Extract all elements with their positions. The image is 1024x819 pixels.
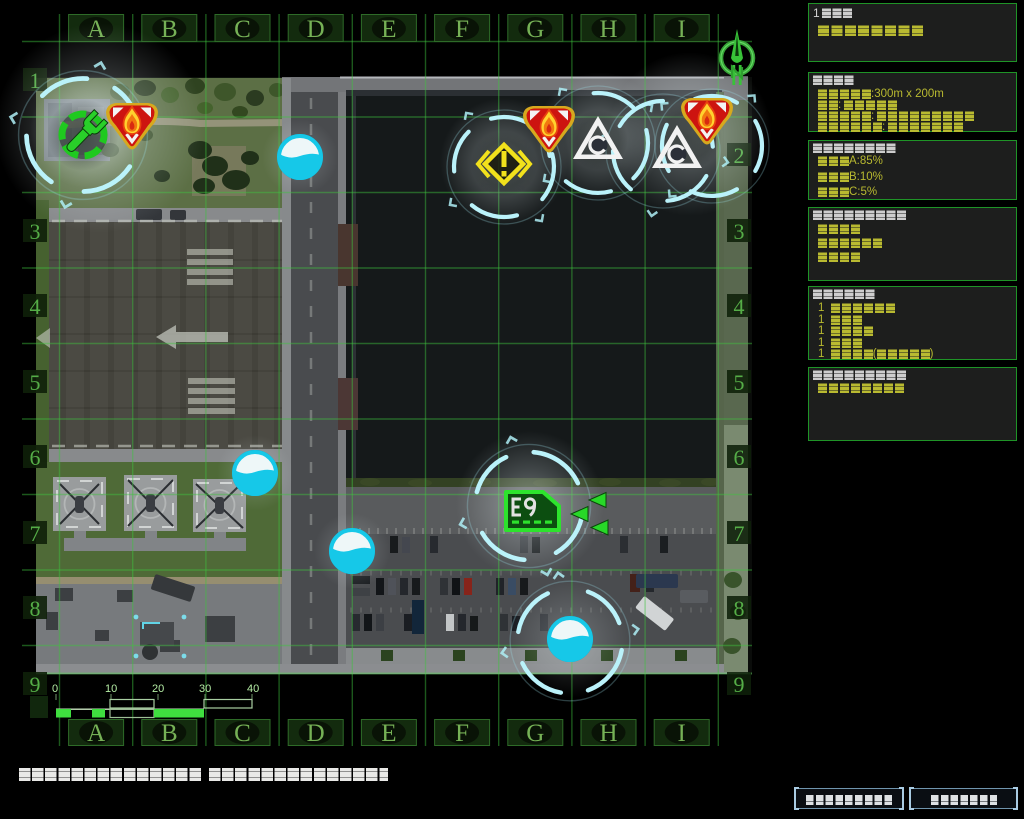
- svg-text:8: 8: [734, 596, 745, 621]
- svg-text:8: 8: [30, 596, 41, 621]
- svg-text:7: 7: [734, 521, 745, 546]
- svg-text:5: 5: [30, 370, 41, 395]
- svg-text:7: 7: [30, 521, 41, 546]
- svg-text:6: 6: [30, 445, 41, 470]
- svg-text:C: C: [234, 16, 251, 43]
- svg-text:H: H: [599, 16, 617, 43]
- svg-text:G: G: [526, 720, 544, 747]
- svg-text:20: 20: [152, 683, 164, 695]
- svg-text:E: E: [381, 16, 396, 43]
- svg-text:9: 9: [734, 672, 745, 697]
- svg-text:I: I: [678, 720, 686, 747]
- svg-text:H: H: [599, 720, 617, 747]
- svg-text:C: C: [234, 720, 251, 747]
- svg-text:0: 0: [52, 683, 58, 695]
- svg-text:3: 3: [30, 219, 41, 244]
- svg-text:B: B: [161, 720, 178, 747]
- svg-text:5: 5: [734, 370, 745, 395]
- svg-text:E: E: [381, 720, 396, 747]
- svg-text:F: F: [455, 720, 469, 747]
- svg-text:6: 6: [734, 445, 745, 470]
- svg-text:30: 30: [199, 683, 211, 695]
- svg-text:40: 40: [247, 683, 259, 695]
- svg-text:3: 3: [734, 219, 745, 244]
- svg-text:B: B: [161, 16, 178, 43]
- svg-text:I: I: [678, 16, 686, 43]
- svg-text:10: 10: [105, 683, 117, 695]
- svg-text:9: 9: [30, 672, 41, 697]
- svg-text:4: 4: [734, 294, 745, 319]
- svg-text:4: 4: [30, 294, 41, 319]
- svg-text:G: G: [526, 16, 544, 43]
- svg-text:D: D: [307, 720, 325, 747]
- svg-text:A: A: [87, 720, 105, 747]
- svg-text:F: F: [455, 16, 469, 43]
- svg-text:D: D: [307, 16, 325, 43]
